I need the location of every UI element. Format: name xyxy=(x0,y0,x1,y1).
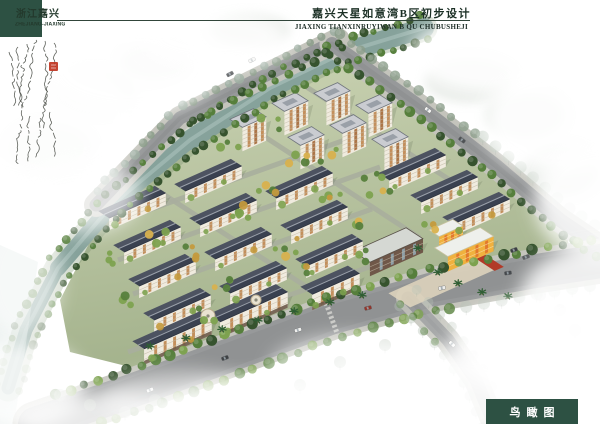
car xyxy=(504,271,511,276)
project-title-en: JIAXING TIANXINRUYIWAN B QU CHUBUSHEJI xyxy=(295,23,468,31)
drawing-type-label: 鸟瞰图 xyxy=(486,399,578,424)
car xyxy=(226,71,234,77)
project-title-cn: 嘉兴天星如意湾B区初步设计 xyxy=(312,5,471,21)
presentation-board: 浙江嘉兴 ZHEJIANG-JIAXING 嘉兴天星如意湾B区初步设计 JIAX… xyxy=(0,0,600,424)
red-seal xyxy=(49,62,58,71)
org-name-cn: 浙江嘉兴 xyxy=(16,5,60,20)
org-name-en: ZHEJIANG-JIAXING xyxy=(15,22,65,28)
drawing-type-text: 鸟瞰图 xyxy=(510,404,561,420)
aerial-rendering xyxy=(0,0,600,424)
